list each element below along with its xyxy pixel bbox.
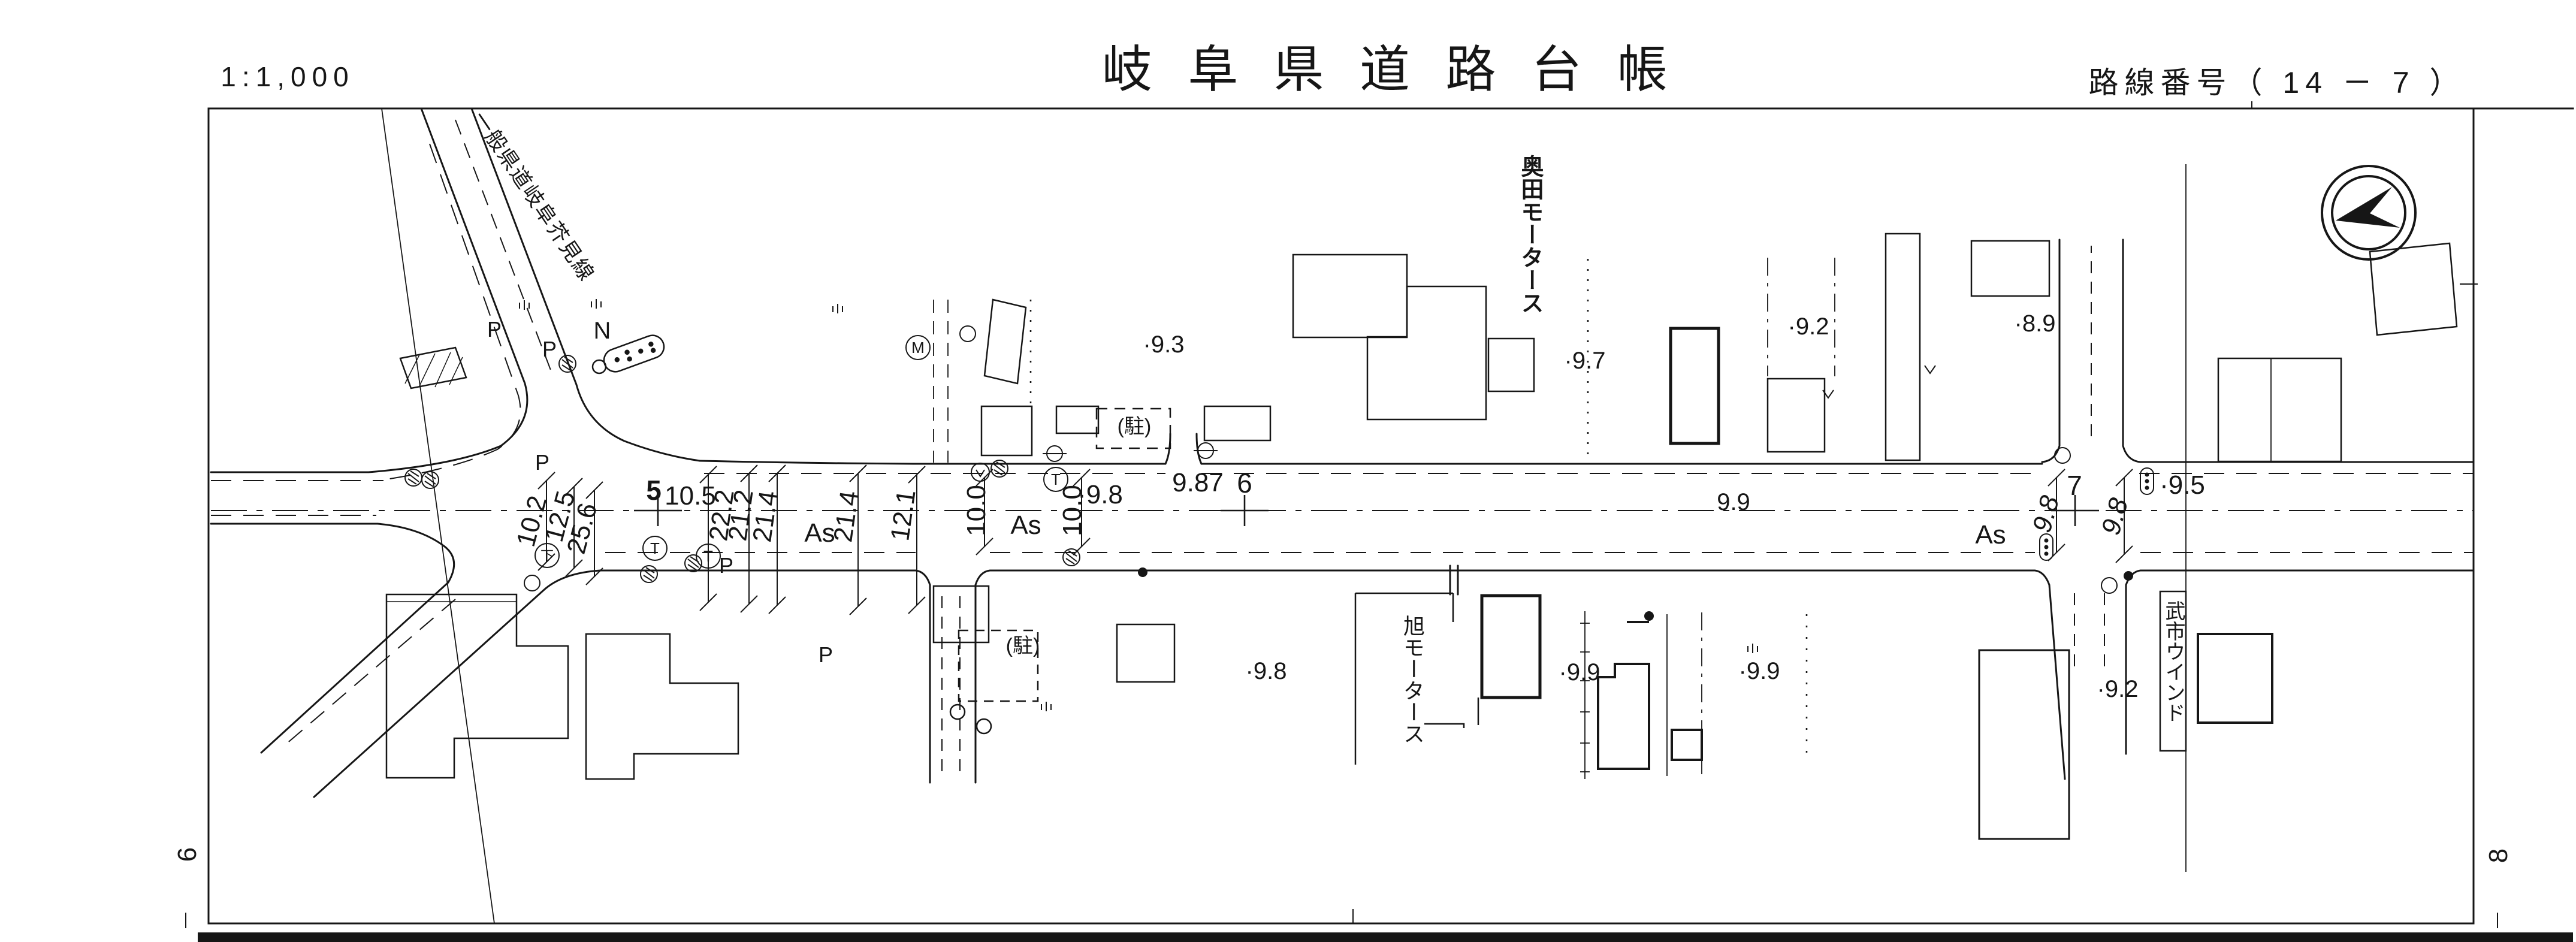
adjacent-sheet-right: 8 — [2486, 849, 2512, 863]
pavement-label: As — [1975, 522, 2006, 548]
spot-elevation: ·9.2 — [2097, 677, 2139, 701]
parking-label: (駐) — [1118, 416, 1152, 437]
buildings-north — [400, 234, 2457, 461]
spot-elevation: ·9.5 — [2160, 472, 2205, 499]
adjacent-sheet-left: 6 — [174, 847, 201, 862]
width-dim: 21.4 — [749, 490, 782, 544]
business-asahi-motors: 旭モータース — [1402, 615, 1423, 744]
spot-elevation: ·8.9 — [2015, 312, 2056, 336]
spot-elevation: ·9.3 — [1143, 333, 1185, 357]
spot-elevation: 9.9 — [1717, 490, 1750, 514]
spot-elevation: ·9.8 — [1246, 659, 1287, 683]
spot-elevation: ·9.9 — [1559, 660, 1600, 684]
pole-label: P — [535, 452, 549, 473]
pole-label: P — [819, 644, 833, 666]
width-dim: 10.0 — [964, 485, 990, 536]
route-number-label: 路線番号（ 14 － 7 ） — [2089, 68, 2466, 98]
sheet-title: 岐 阜 県 道 路 台 帳 — [1102, 44, 1678, 95]
sewer-symbol-letter: 下 — [540, 548, 554, 563]
pavement-label: As — [1010, 512, 1041, 539]
pole-label: N — [594, 319, 611, 343]
business-takechi-window: 武市ウインド — [2163, 600, 2184, 723]
dimension-lines — [538, 465, 2133, 615]
station-offset: 9.87 — [1172, 470, 1224, 496]
boundary-line — [382, 108, 494, 923]
station-number: 7 — [2067, 472, 2082, 499]
parking-label: (駐) — [1006, 636, 1040, 656]
width-dim: 21.4 — [830, 490, 863, 544]
buildings-south — [386, 586, 2272, 839]
t-symbol-letter: T — [650, 539, 660, 557]
road-register-sheet: T T T 下 M — [0, 0, 2576, 942]
utility-pole-icons — [405, 355, 1080, 582]
spot-dots — [1138, 567, 2133, 621]
pole-label: P — [542, 339, 557, 360]
station-number: 6 — [1237, 469, 1252, 497]
field-mark-icons — [1823, 366, 1935, 398]
pole-label: P — [719, 555, 733, 576]
station-number: 5 — [646, 476, 662, 504]
pole-label: P — [487, 319, 502, 340]
spot-elevation: ·9.8 — [1077, 482, 1123, 508]
width-dim: 12.1 — [887, 488, 920, 543]
t-symbol-letter: T — [703, 547, 713, 565]
m-symbol-letter: M — [911, 339, 925, 357]
spot-elevation: ·9.7 — [1565, 349, 1606, 373]
business-okuda-motors: 奥田モータース — [1518, 155, 1541, 314]
map-scale: 1:1,000 — [221, 63, 354, 90]
north-arrow-icon — [2322, 166, 2415, 259]
manhole-icons — [524, 326, 2117, 593]
scan-edge-strip — [198, 932, 2573, 942]
spot-elevation: ·9.2 — [1788, 315, 1829, 339]
spot-elevation: ·9.9 — [1739, 659, 1780, 683]
